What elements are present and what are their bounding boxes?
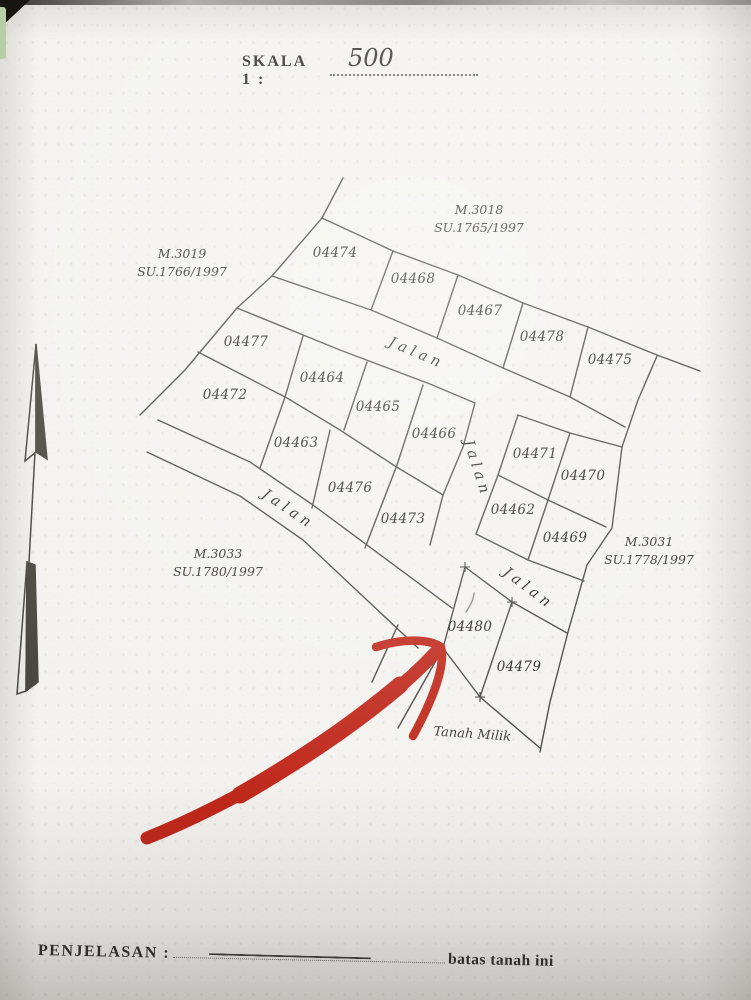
parcel-divider <box>443 648 480 697</box>
scale-label: SKALA 1 : <box>242 53 306 89</box>
land-note: Tanah Milik <box>433 724 512 744</box>
parcel-label-04476: 04476 <box>328 480 373 496</box>
parcel-divider <box>443 567 465 648</box>
road-label-2: Jalan <box>257 485 318 533</box>
parcel-label-04467: 04467 <box>458 303 503 319</box>
neighbor-survey-M.3019: SU.1766/1997 <box>137 264 227 279</box>
parcel-divider <box>570 327 588 397</box>
parcel-label-04468: 04468 <box>391 271 436 287</box>
survey-cross-icon <box>460 562 470 572</box>
neighbor-survey-M.3018: SU.1765/1997 <box>434 220 524 235</box>
parcel-label-04478: 04478 <box>520 329 565 345</box>
scale-value: 500 <box>348 44 394 72</box>
parcel-label-04469: 04469 <box>543 530 588 546</box>
red-arrow-annotation <box>147 641 442 838</box>
parcel-label-04480: 04480 <box>448 619 493 635</box>
neighbor-survey-M.3033: SU.1780/1997 <box>173 564 263 579</box>
parcel-label-04473: 04473 <box>381 511 425 527</box>
parcel-label-04471: 04471 <box>513 446 557 462</box>
parcel-label-04464: 04464 <box>300 370 344 386</box>
scan-edge-artifact <box>0 7 6 59</box>
parcel-label-04463: 04463 <box>274 435 318 451</box>
north-arrow-icon <box>17 344 47 694</box>
parcel-divider <box>344 362 367 430</box>
pen-stroke <box>209 953 371 959</box>
survey-map: 0447404468044670447804475044770446404465… <box>0 0 751 1000</box>
red-arrow-shaft <box>147 651 437 838</box>
parcel-label-04479: 04479 <box>497 659 542 675</box>
road-edge-line <box>147 452 418 648</box>
boundary-extension-line <box>372 625 398 682</box>
neighbor-survey-M.3031: SU.1778/1997 <box>604 552 694 567</box>
road-edge-line <box>272 276 625 427</box>
road-edge-line <box>430 403 475 545</box>
road-label-1: Jalan <box>383 333 447 372</box>
pencil-mark <box>466 593 474 612</box>
road-label-3: Jalan <box>459 435 494 499</box>
parcel-label-04470: 04470 <box>561 468 606 484</box>
red-arrow-shaft-bulge <box>240 685 400 795</box>
parcel-label-04465: 04465 <box>356 399 400 415</box>
parcel-label-04477: 04477 <box>224 334 269 350</box>
parcel-label-04474: 04474 <box>313 245 357 261</box>
parcel-label-04466: 04466 <box>412 426 457 442</box>
neighbor-ref-M.3019: M.3019 <box>157 246 207 261</box>
legend-value: batas tanah ini <box>448 951 554 971</box>
north-block-top-line <box>322 218 700 371</box>
parcel-label-04472: 04472 <box>203 387 247 403</box>
neighbor-ref-M.3033: M.3033 <box>193 546 243 561</box>
legend-label: PENJELASAN : <box>38 942 171 963</box>
parcel-divider <box>437 275 458 338</box>
map-labels: 0447404468044670447804475044770446404465… <box>137 202 694 745</box>
neighbor-ref-M.3018: M.3018 <box>454 202 504 217</box>
scan-edge-artifact <box>0 0 751 5</box>
survey-cross-icon <box>507 597 517 607</box>
parcel-divider <box>371 251 393 310</box>
east-block-top-line <box>518 415 622 447</box>
neighbor-ref-M.3031: M.3031 <box>624 534 674 549</box>
parcel-divider <box>480 602 512 697</box>
parcel-label-04462: 04462 <box>491 502 535 518</box>
road-label-4: Jalan <box>497 563 557 613</box>
parcel-label-04475: 04475 <box>588 352 632 368</box>
